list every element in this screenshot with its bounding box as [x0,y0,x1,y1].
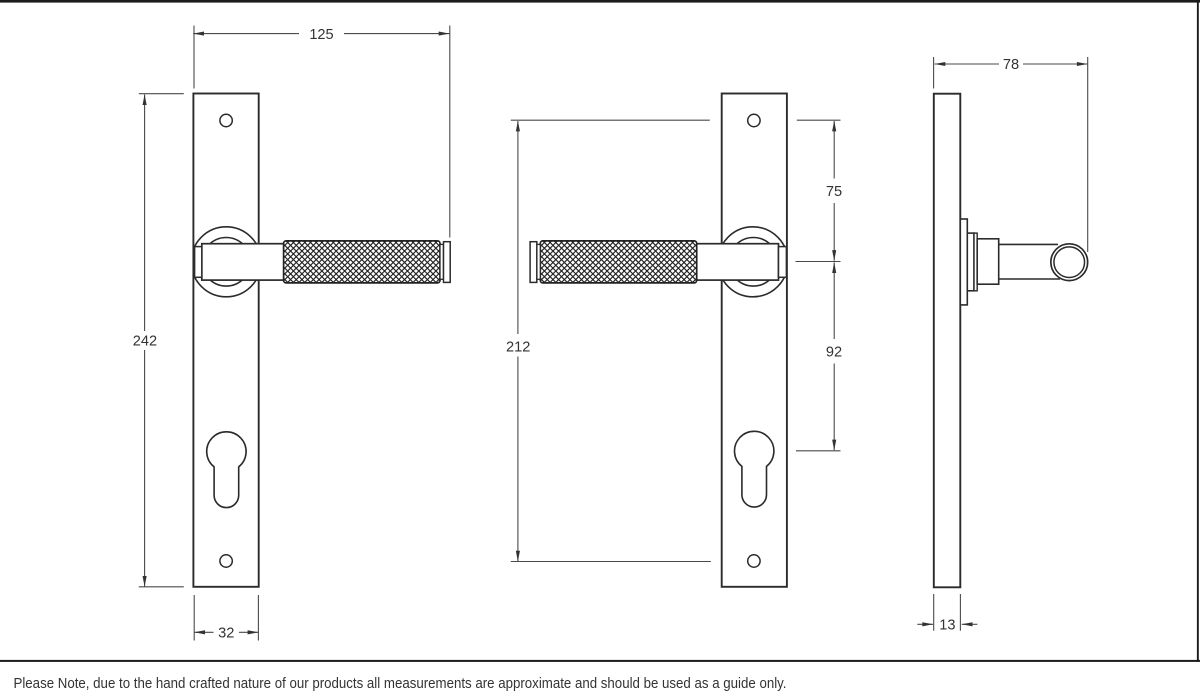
svg-text:125: 125 [309,27,333,43]
svg-text:13: 13 [939,617,955,633]
svg-text:212: 212 [506,339,530,355]
svg-text:32: 32 [218,625,234,641]
svg-text:75: 75 [826,184,842,200]
svg-text:Please Note, due to the hand c: Please Note, due to the hand crafted nat… [14,676,787,692]
svg-text:92: 92 [826,344,842,360]
svg-text:242: 242 [133,334,157,350]
svg-text:78: 78 [1003,57,1019,73]
